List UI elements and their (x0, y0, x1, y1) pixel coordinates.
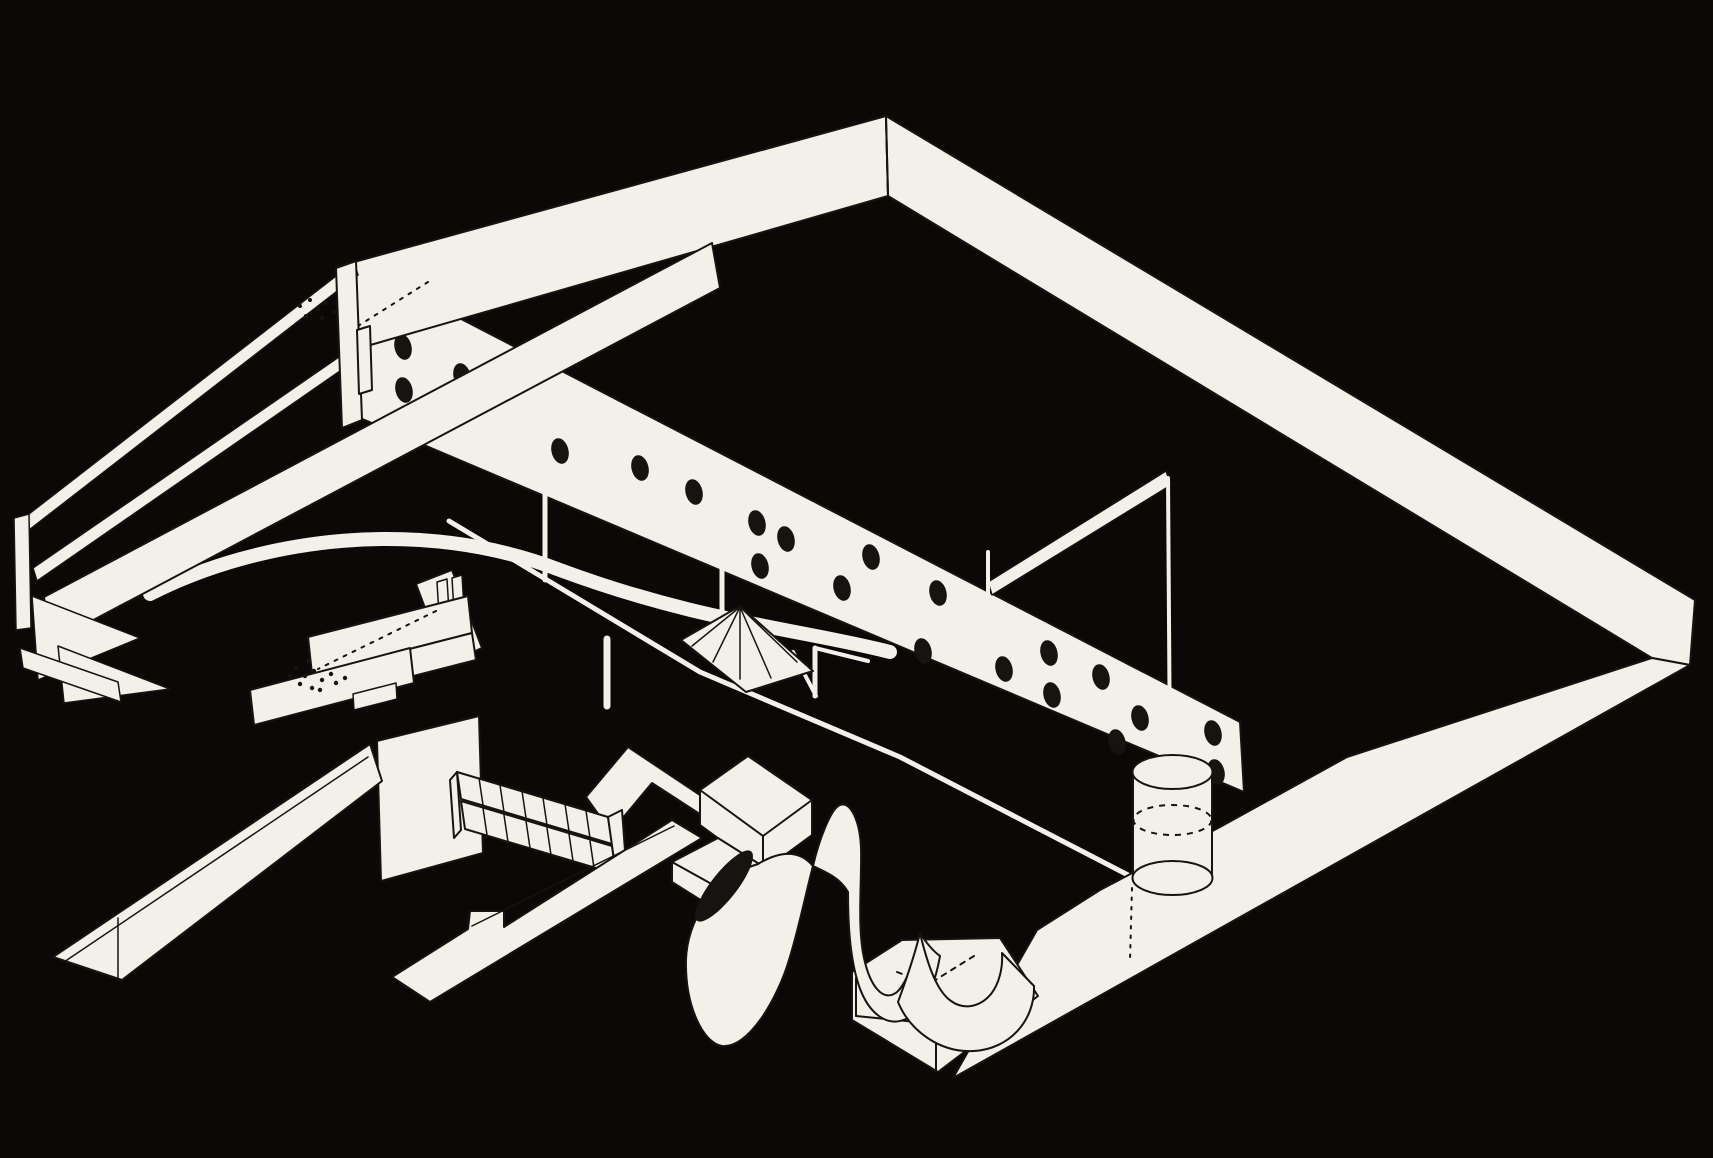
cylinder-top (1133, 755, 1213, 789)
hanger-beam (988, 471, 1171, 595)
scanned-drawing-page (0, 0, 1713, 1158)
beam-end-panel (357, 326, 372, 394)
roof-edge-bottom (953, 658, 1690, 1078)
suspension-rod (1168, 478, 1170, 762)
long-bar-flange (64, 757, 368, 962)
axonometric-ink-drawing (0, 0, 1713, 1158)
trough-end-post (14, 514, 31, 630)
cylinder-bottom (1133, 861, 1213, 895)
long-bar (53, 744, 382, 980)
